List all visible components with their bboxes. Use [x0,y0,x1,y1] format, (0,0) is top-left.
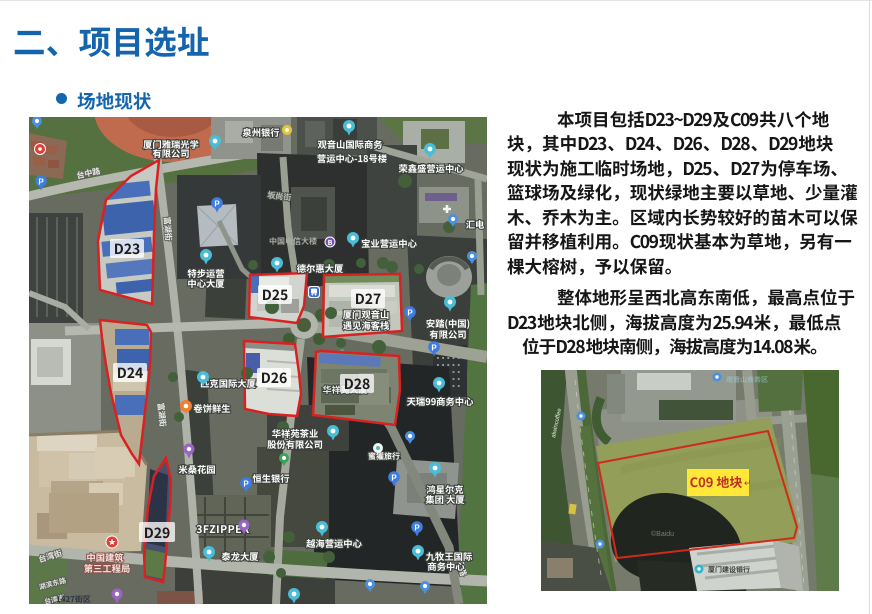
svg-text:股份有限公司: 股份有限公司 [267,437,323,451]
svg-text:有限公司: 有限公司 [152,146,189,160]
svg-text:营运中心-18号楼: 营运中心-18号楼 [317,151,388,165]
svg-text:蜜獾旅行: 蜜獾旅行 [368,451,400,462]
svg-text:德尔惠大厦: 德尔惠大厦 [297,261,344,275]
svg-text:B: B [328,238,333,248]
svg-text:宝业营运中心: 宝业营运中心 [361,236,417,250]
svg-text:荣鑫盛营运中心: 荣鑫盛营运中心 [398,161,464,175]
svg-text:D25: D25 [262,285,289,305]
svg-text:中国电信大楼: 中国电信大楼 [269,236,317,247]
svg-text:观音山商务区: 观音山商务区 [726,375,768,385]
svg-text:富湖街: 富湖街 [161,216,174,241]
svg-text:集团 大厦: 集团 大厦 [425,492,464,506]
svg-text:D27: D27 [355,289,382,309]
svg-text:有限公司: 有限公司 [429,327,466,341]
svg-text:卷饼鲜生: 卷饼鲜生 [193,401,230,415]
svg-text:厦门建设银行: 厦门建设银行 [708,565,750,575]
svg-text:第三工程局: 第三工程局 [84,561,131,575]
svg-text:©Baidu: ©Baidu [651,530,674,538]
svg-text:米桑花园: 米桑花园 [178,462,215,476]
svg-text:D26: D26 [261,368,288,388]
svg-text:泉州银行: 泉州银行 [242,125,279,139]
svg-text:汇电: 汇电 [466,217,485,231]
svg-text:D28: D28 [344,374,371,394]
svg-text:C09 地块: C09 地块 [690,472,743,491]
svg-text:1427街区: 1427街区 [56,594,91,604]
svg-text:D29: D29 [144,523,171,543]
svg-text:商务中心: 商务中心 [427,559,465,573]
svg-text:恒生银行: 恒生银行 [252,471,289,485]
svg-text:天瑞99商务中心: 天瑞99商务中心 [407,394,474,408]
svg-text:泰龙大厦: 泰龙大厦 [221,549,258,563]
svg-text:越海营运中心: 越海营运中心 [306,536,362,550]
svg-text:↵: ↵ [744,476,752,489]
svg-text:观音山国际商务: 观音山国际商务 [317,137,383,151]
svg-text:D24: D24 [117,363,144,383]
svg-text:D23: D23 [114,239,141,259]
svg-text:遇见海客栈: 遇见海客栈 [343,318,390,332]
svg-text:中心大厦: 中心大厦 [187,276,224,290]
